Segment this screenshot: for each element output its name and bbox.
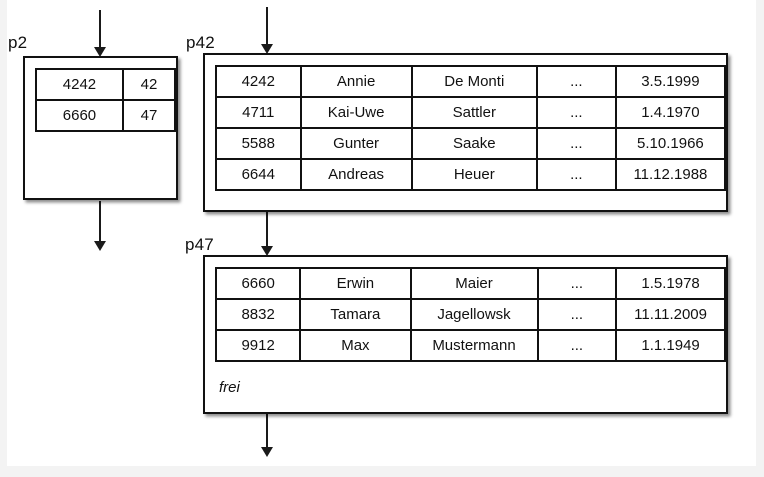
page-table-p42: 4242 Annie De Monti ... 3.5.1999 4711 Ka… bbox=[215, 65, 726, 191]
record-cell: 11.12.1988 bbox=[616, 159, 725, 190]
record-cell: 5588 bbox=[216, 128, 301, 159]
record-cell: 11.11.2009 bbox=[616, 299, 725, 330]
page-table-p47: 6660 Erwin Maier ... 1.5.1978 8832 Tamar… bbox=[215, 267, 726, 362]
record-cell: 5.10.1966 bbox=[616, 128, 725, 159]
page-box-p42: 4242 Annie De Monti ... 3.5.1999 4711 Ka… bbox=[203, 53, 728, 212]
record-row: 8832 Tamara Jagellowsk ... 11.11.2009 bbox=[216, 299, 725, 330]
record-cell: Heuer bbox=[412, 159, 537, 190]
record-row: 9912 Max Mustermann ... 1.1.1949 bbox=[216, 330, 725, 361]
page-label-p47: p47 bbox=[185, 235, 214, 255]
record-row: 6644 Andreas Heuer ... 11.12.1988 bbox=[216, 159, 725, 190]
record-row: 4242 42 bbox=[36, 69, 175, 100]
record-cell: 4711 bbox=[216, 97, 301, 128]
arrow-out-of-p47 bbox=[261, 414, 273, 457]
page-edge-right bbox=[756, 0, 764, 477]
arrow-shaft bbox=[266, 7, 268, 45]
record-cell: 1.5.1978 bbox=[616, 268, 725, 299]
page-box-p47: 6660 Erwin Maier ... 1.5.1978 8832 Tamar… bbox=[203, 255, 728, 414]
record-cell: Annie bbox=[301, 66, 412, 97]
record-cell: 1.4.1970 bbox=[616, 97, 725, 128]
record-cell: ... bbox=[537, 128, 616, 159]
arrow-shaft bbox=[99, 10, 101, 48]
arrow-p42-to-p47 bbox=[261, 212, 273, 256]
record-cell: Jagellowsk bbox=[411, 299, 538, 330]
record-cell: ... bbox=[538, 299, 617, 330]
record-cell: 6660 bbox=[216, 268, 300, 299]
record-cell: 42 bbox=[123, 69, 175, 100]
page-label-p42: p42 bbox=[186, 33, 215, 53]
record-cell: ... bbox=[537, 66, 616, 97]
record-cell: Gunter bbox=[301, 128, 412, 159]
page-label-p2: p2 bbox=[8, 33, 27, 53]
arrowhead-down-icon bbox=[94, 241, 106, 251]
record-cell: Max bbox=[300, 330, 410, 361]
arrow-into-p2 bbox=[94, 10, 106, 57]
record-cell: 8832 bbox=[216, 299, 300, 330]
record-cell: Maier bbox=[411, 268, 538, 299]
arrow-shaft bbox=[99, 201, 101, 242]
arrow-out-of-p2 bbox=[94, 201, 106, 251]
record-cell: Mustermann bbox=[411, 330, 538, 361]
record-row: 4242 Annie De Monti ... 3.5.1999 bbox=[216, 66, 725, 97]
record-cell: Saake bbox=[412, 128, 537, 159]
page-table-p2: 4242 42 6660 47 bbox=[35, 68, 176, 132]
record-cell: Tamara bbox=[300, 299, 410, 330]
record-cell: 6660 bbox=[36, 100, 123, 131]
arrow-shaft bbox=[266, 414, 268, 448]
record-cell: 4242 bbox=[36, 69, 123, 100]
record-cell: Erwin bbox=[300, 268, 410, 299]
record-cell: 1.1.1949 bbox=[616, 330, 725, 361]
record-row: 6660 47 bbox=[36, 100, 175, 131]
record-cell: Kai-Uwe bbox=[301, 97, 412, 128]
arrowhead-down-icon bbox=[261, 447, 273, 457]
record-cell: 4242 bbox=[216, 66, 301, 97]
record-cell: ... bbox=[538, 268, 617, 299]
record-cell: 9912 bbox=[216, 330, 300, 361]
record-cell: ... bbox=[538, 330, 617, 361]
record-cell: Andreas bbox=[301, 159, 412, 190]
record-cell: 47 bbox=[123, 100, 175, 131]
record-cell: ... bbox=[537, 159, 616, 190]
record-row: 6660 Erwin Maier ... 1.5.1978 bbox=[216, 268, 725, 299]
page-edge-left bbox=[0, 0, 7, 477]
free-space-label: frei bbox=[219, 379, 240, 396]
arrow-shaft bbox=[266, 212, 268, 247]
record-cell: De Monti bbox=[412, 66, 537, 97]
record-cell: Sattler bbox=[412, 97, 537, 128]
record-cell: ... bbox=[537, 97, 616, 128]
record-cell: 3.5.1999 bbox=[616, 66, 725, 97]
page-edge-bottom bbox=[0, 466, 764, 477]
record-cell: 6644 bbox=[216, 159, 301, 190]
page-box-p2: 4242 42 6660 47 bbox=[23, 56, 178, 200]
record-row: 4711 Kai-Uwe Sattler ... 1.4.1970 bbox=[216, 97, 725, 128]
diagram-canvas: p2 4242 42 6660 47 p42 4242 Annie De Mon… bbox=[0, 0, 764, 477]
arrow-into-p42 bbox=[261, 7, 273, 54]
record-row: 5588 Gunter Saake ... 5.10.1966 bbox=[216, 128, 725, 159]
